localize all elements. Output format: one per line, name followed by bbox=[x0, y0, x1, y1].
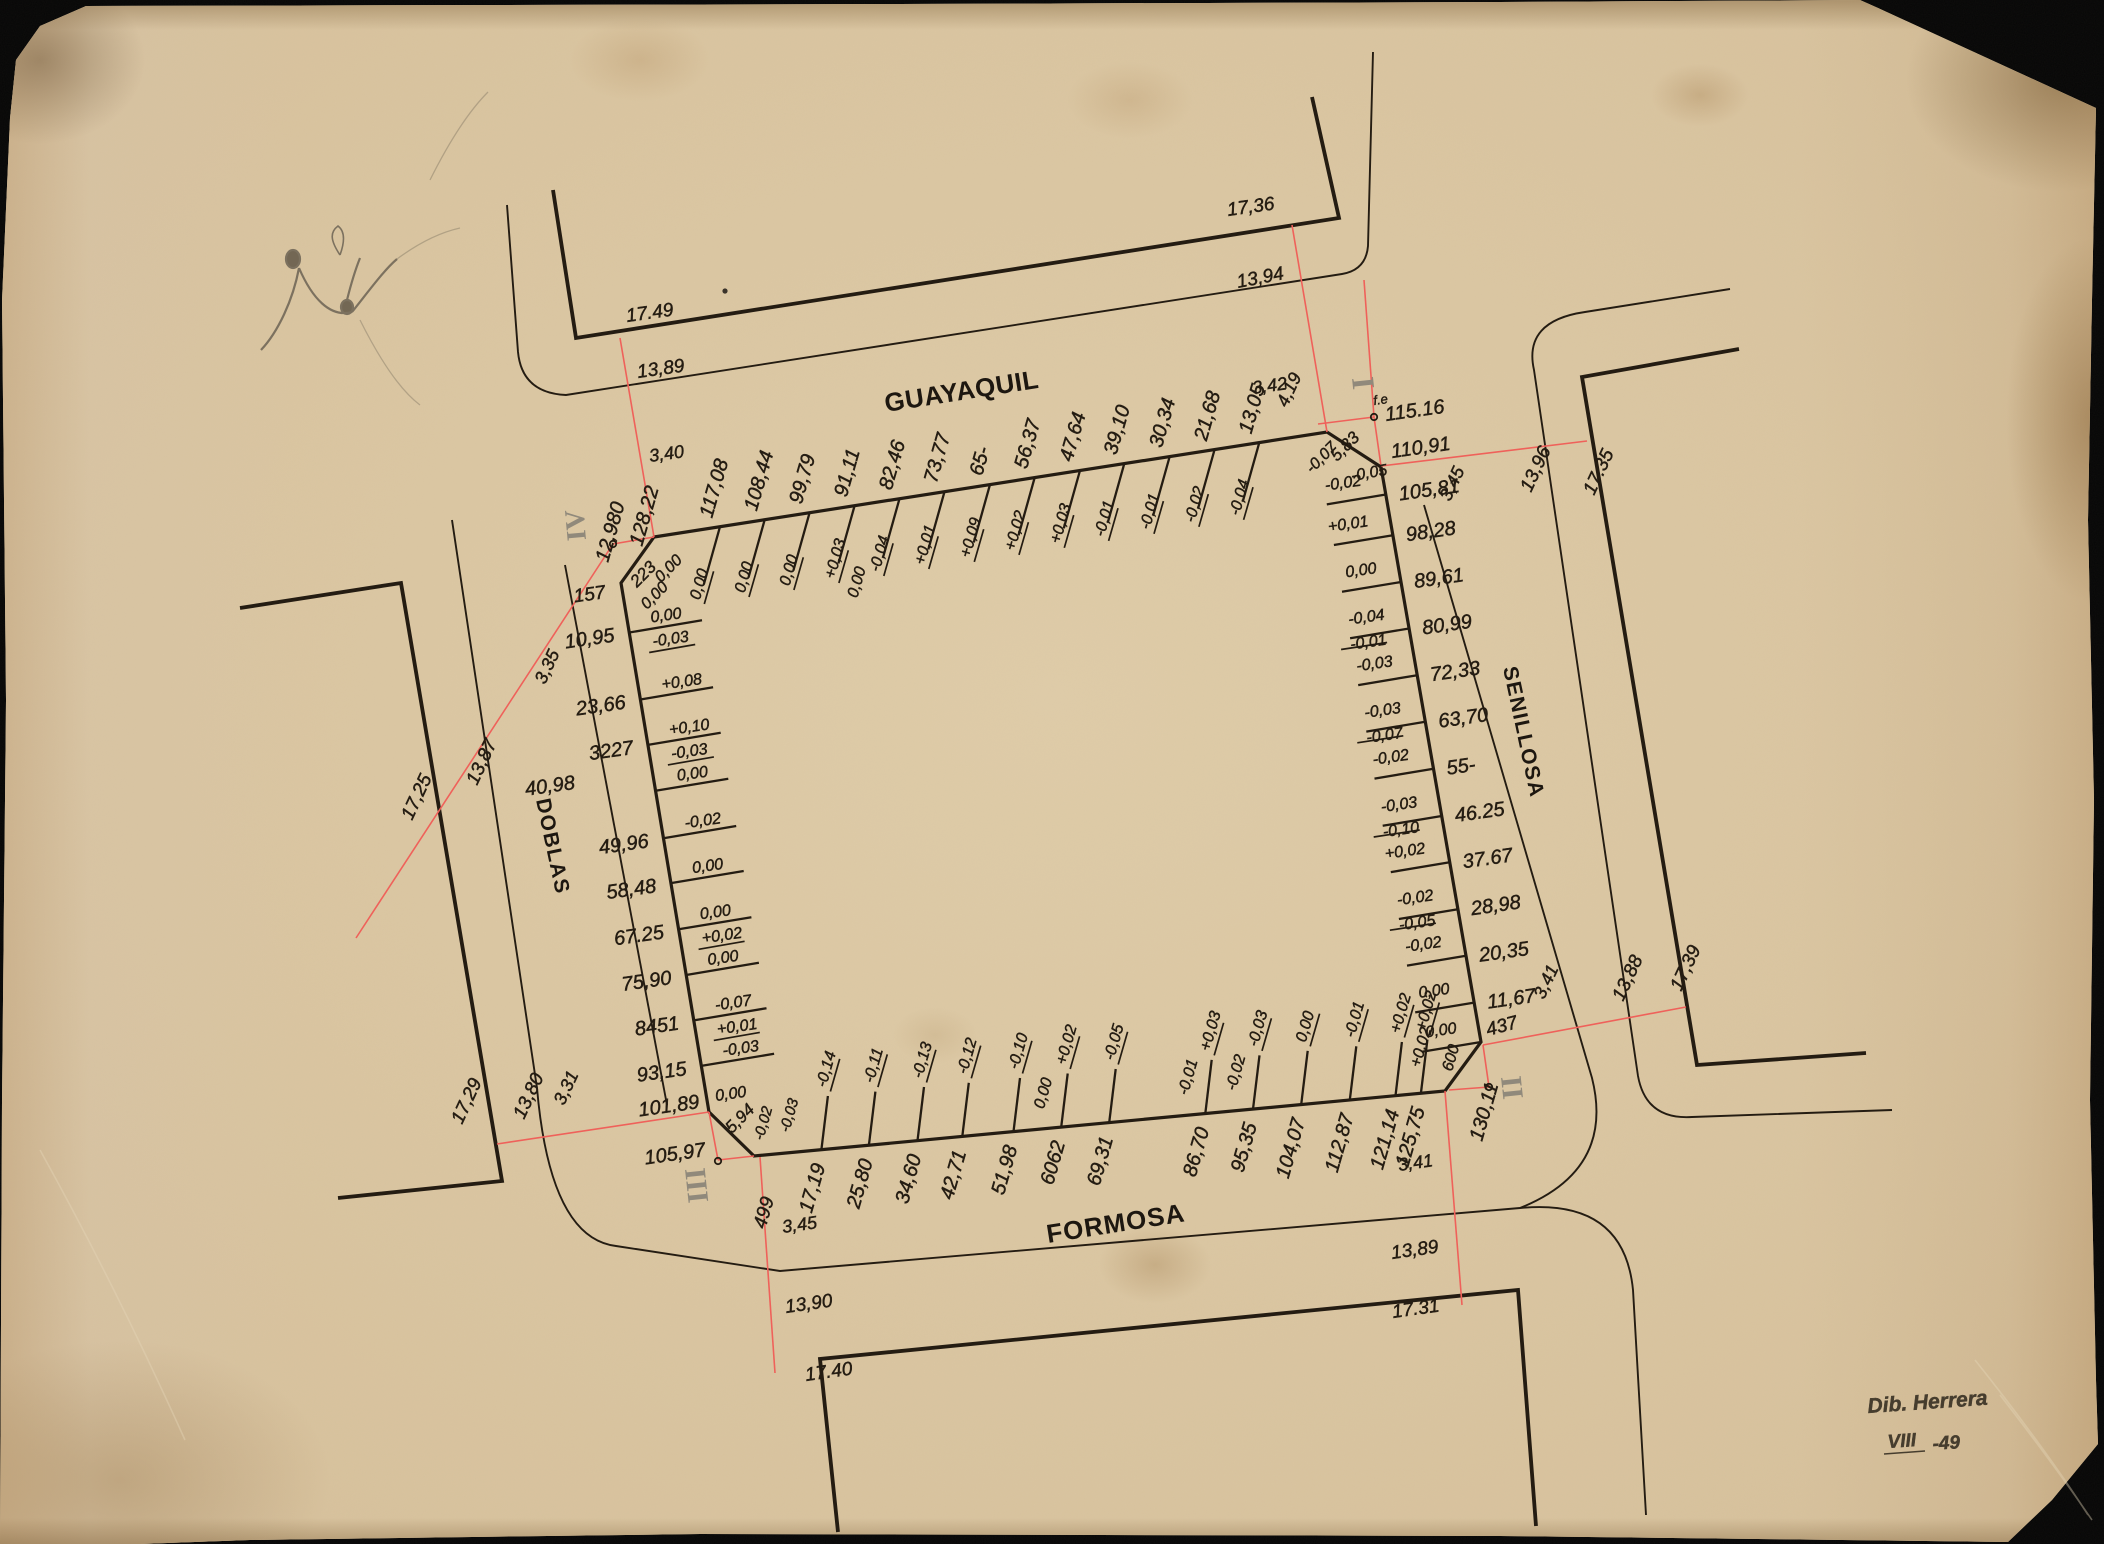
svg-text:III: III bbox=[678, 1166, 714, 1204]
svg-text:II: II bbox=[1494, 1074, 1529, 1101]
svg-text:-49: -49 bbox=[1932, 1432, 1961, 1455]
svg-text:55-: 55- bbox=[1445, 754, 1477, 780]
svg-text:IV: IV bbox=[559, 508, 593, 542]
svg-text:VIII: VIII bbox=[1887, 1430, 1918, 1453]
